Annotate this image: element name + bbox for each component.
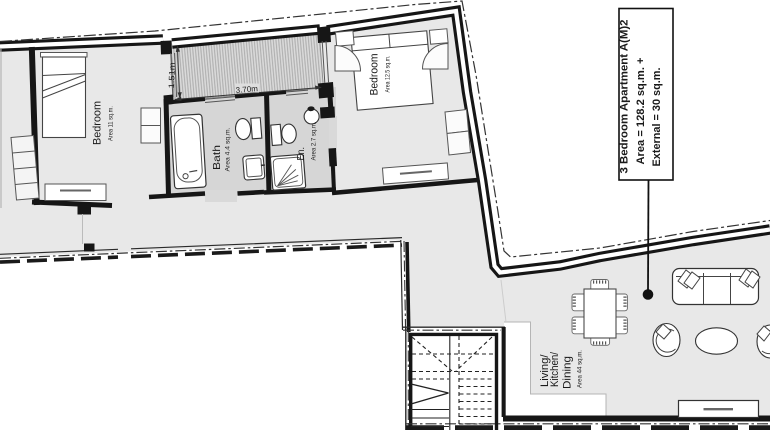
svg-text:Area 44 sq.m.: Area 44 sq.m. (577, 350, 584, 388)
svg-text:External = 30 sq.m.: External = 30 sq.m. (651, 68, 663, 167)
svg-text:3.70m: 3.70m (235, 84, 258, 95)
svg-text:Area 2.7 sq.m.: Area 2.7 sq.m. (311, 121, 318, 160)
svg-text:1.51m: 1.51m (167, 62, 177, 89)
svg-text:Dining: Dining (562, 356, 574, 389)
svg-text:Area 11 sq.m.: Area 11 sq.m. (108, 106, 115, 141)
svg-text:Bath: Bath (211, 145, 223, 170)
svg-text:3 Bedroom Apartment A(M)2: 3 Bedroom Apartment A(M)2 (619, 20, 631, 174)
svg-text:Bedroom: Bedroom (92, 101, 104, 145)
svg-text:Bedroom: Bedroom (369, 54, 381, 96)
svg-text:Area 4.4 sq.m.: Area 4.4 sq.m. (225, 127, 232, 171)
svg-text:Area = 128.2 sq.m. +: Area = 128.2 sq.m. + (635, 58, 647, 165)
svg-text:Area 12.5 sq.m.: Area 12.5 sq.m. (385, 55, 392, 92)
svg-text:Kitchen/: Kitchen/ (549, 351, 561, 387)
svg-text:En.: En. (296, 147, 307, 161)
